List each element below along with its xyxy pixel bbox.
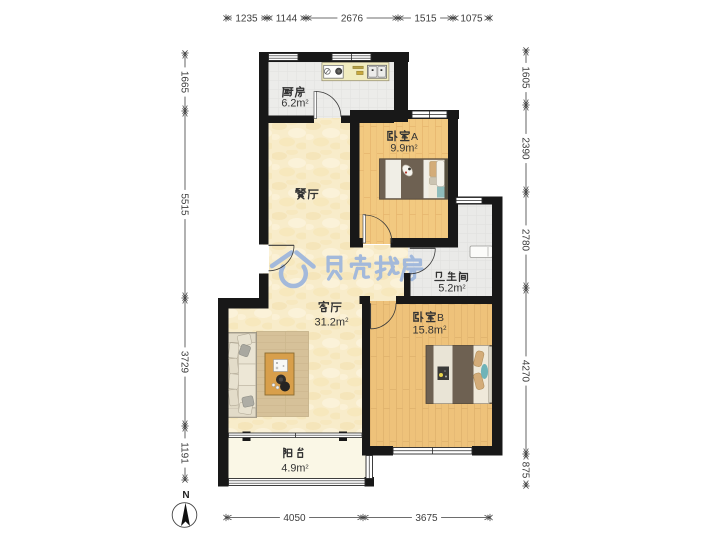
- svg-text:3675: 3675: [415, 513, 438, 524]
- svg-text:2676: 2676: [341, 13, 364, 24]
- svg-text:875: 875: [520, 462, 531, 479]
- svg-text:6.2m2: 6.2m2: [281, 97, 308, 109]
- svg-text:N: N: [182, 490, 189, 501]
- svg-text:2780: 2780: [520, 229, 531, 252]
- svg-text:1144: 1144: [276, 13, 298, 24]
- svg-text:1235: 1235: [235, 13, 258, 24]
- svg-text:4050: 4050: [283, 513, 306, 524]
- svg-text:1191: 1191: [179, 442, 190, 464]
- svg-text:A: A: [411, 131, 418, 143]
- svg-text:1665: 1665: [179, 71, 190, 94]
- svg-text:1075: 1075: [460, 13, 483, 24]
- svg-text:15.8m2: 15.8m2: [413, 324, 448, 336]
- svg-text:5515: 5515: [179, 193, 190, 216]
- svg-text:4.9m2: 4.9m2: [281, 462, 308, 474]
- svg-text:1605: 1605: [520, 66, 531, 89]
- svg-text:4270: 4270: [520, 360, 531, 383]
- svg-text:2390: 2390: [520, 137, 531, 160]
- svg-text:1515: 1515: [414, 13, 437, 24]
- svg-text:3729: 3729: [179, 351, 190, 374]
- svg-text:9.9m2: 9.9m2: [390, 142, 417, 154]
- svg-text:31.2m2: 31.2m2: [315, 316, 350, 328]
- svg-text:5.2m2: 5.2m2: [438, 282, 465, 294]
- svg-text:B: B: [437, 312, 444, 324]
